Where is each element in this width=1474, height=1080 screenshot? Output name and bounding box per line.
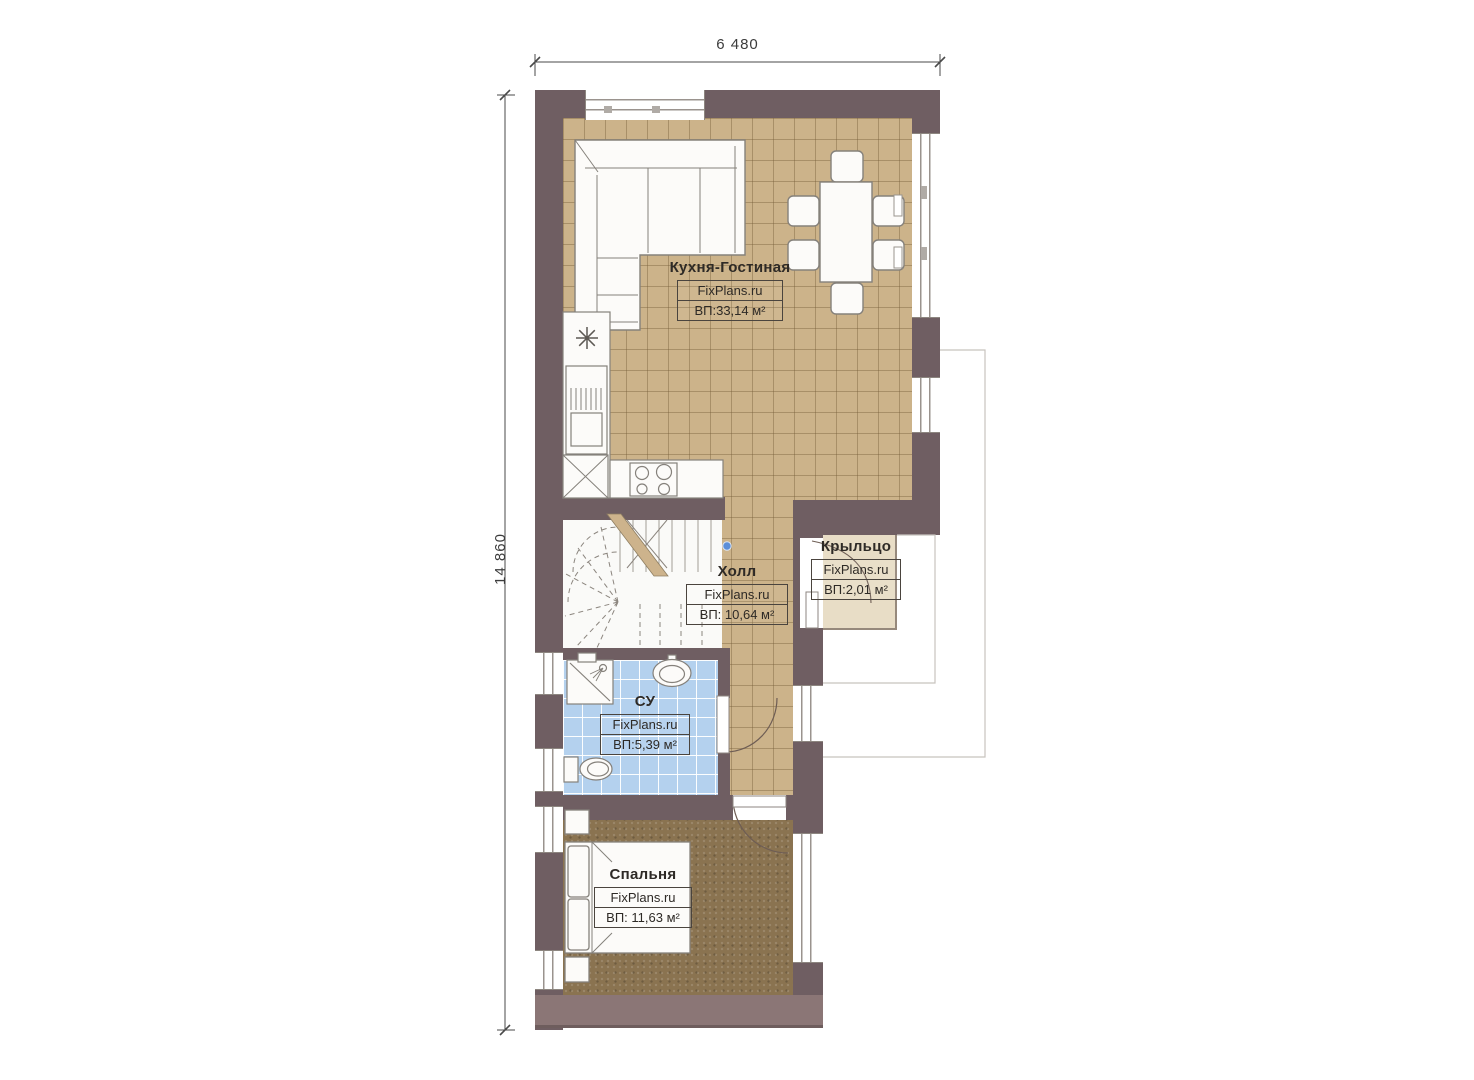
info-box-bathroom: FixPlans.ru ВП:5,39 м² (600, 714, 690, 755)
window-right-large (912, 133, 940, 318)
dimension-height-label: 14 860 (492, 509, 508, 609)
dimension-width-label: 6 480 (535, 36, 940, 53)
wall-kitchen-bottom-left (563, 497, 725, 520)
room-name-bedroom: Спальня (543, 866, 743, 883)
room-name-kitchen-living: Кухня-Гостиная (630, 259, 830, 276)
area-label: ВП: 10,64 м² (687, 604, 787, 624)
room-name-bathroom: СУ (545, 693, 745, 710)
brand-label: FixPlans.ru (595, 888, 691, 907)
window-left-bedroom-1 (535, 806, 563, 853)
brand-label: FixPlans.ru (812, 560, 900, 579)
room-label-bathroom: СУ FixPlans.ru ВП:5,39 м² (545, 693, 745, 755)
room-label-porch: Крыльцо FixPlans.ru ВП:2,01 м² (756, 538, 956, 600)
window-bedroom-right (793, 833, 823, 963)
room-label-bedroom: Спальня FixPlans.ru ВП: 11,63 м² (543, 866, 743, 928)
wall-bathroom-top (563, 648, 730, 660)
wall-bedroom-top-stub (786, 795, 793, 820)
floor-plan-canvas: 6 480 14 860 Кухня-Гостиная FixPlans.ru … (0, 0, 1474, 1080)
window-left-bathroom-1 (535, 652, 563, 695)
info-box-porch: FixPlans.ru ВП:2,01 м² (811, 559, 901, 600)
bedroom-door-leaf (733, 796, 786, 807)
info-box-bedroom: FixPlans.ru ВП: 11,63 м² (594, 887, 692, 928)
wall-bottom (535, 995, 823, 1028)
window-right-small (912, 377, 940, 433)
area-label: ВП:33,14 м² (678, 300, 782, 320)
area-label: ВП:5,39 м² (601, 734, 689, 754)
window-left-bedroom-2 (535, 950, 563, 990)
window-corridor-right (793, 685, 823, 742)
brand-label: FixPlans.ru (678, 281, 782, 300)
area-label: ВП:2,01 м² (812, 579, 900, 599)
brand-label: FixPlans.ru (601, 715, 689, 734)
window-top (585, 90, 705, 120)
room-name-porch: Крыльцо (756, 538, 956, 555)
info-box-kitchen-living: FixPlans.ru ВП:33,14 м² (677, 280, 783, 321)
wall-kitchen-bottom-right (793, 500, 940, 535)
room-label-kitchen-living: Кухня-Гостиная FixPlans.ru ВП:33,14 м² (630, 259, 830, 321)
wall-bathroom-right-b (718, 753, 730, 795)
area-label: ВП: 11,63 м² (595, 907, 691, 927)
wall-bedroom-top (563, 795, 733, 820)
